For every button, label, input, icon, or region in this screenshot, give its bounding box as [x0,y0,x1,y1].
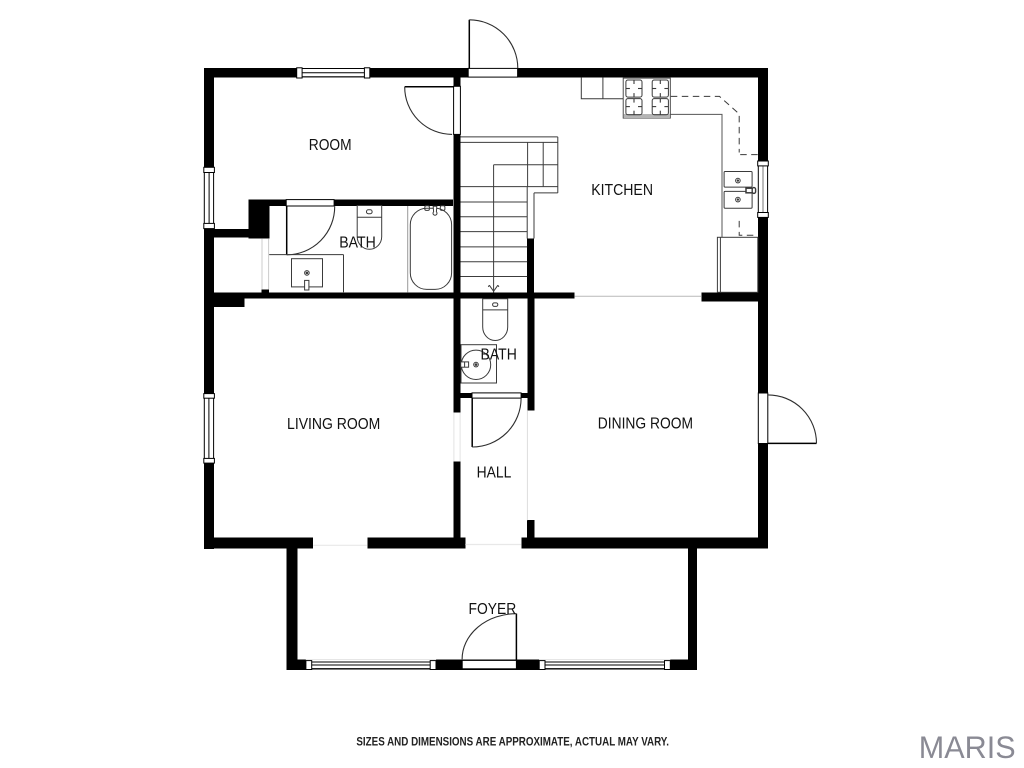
svg-text:ROOM: ROOM [309,137,352,154]
svg-text:MARIS: MARIS [919,729,1016,765]
svg-text:KITCHEN: KITCHEN [591,182,653,199]
svg-text:BATH: BATH [481,347,517,364]
svg-text:HALL: HALL [477,465,512,482]
svg-text:LIVING ROOM: LIVING ROOM [287,416,380,433]
svg-text:FOYER: FOYER [469,601,517,618]
svg-text:BATH: BATH [339,234,376,251]
svg-text:SIZES AND DIMENSIONS ARE APPRO: SIZES AND DIMENSIONS ARE APPROXIMATE, AC… [356,737,669,749]
svg-text:DINING ROOM: DINING ROOM [598,415,693,432]
